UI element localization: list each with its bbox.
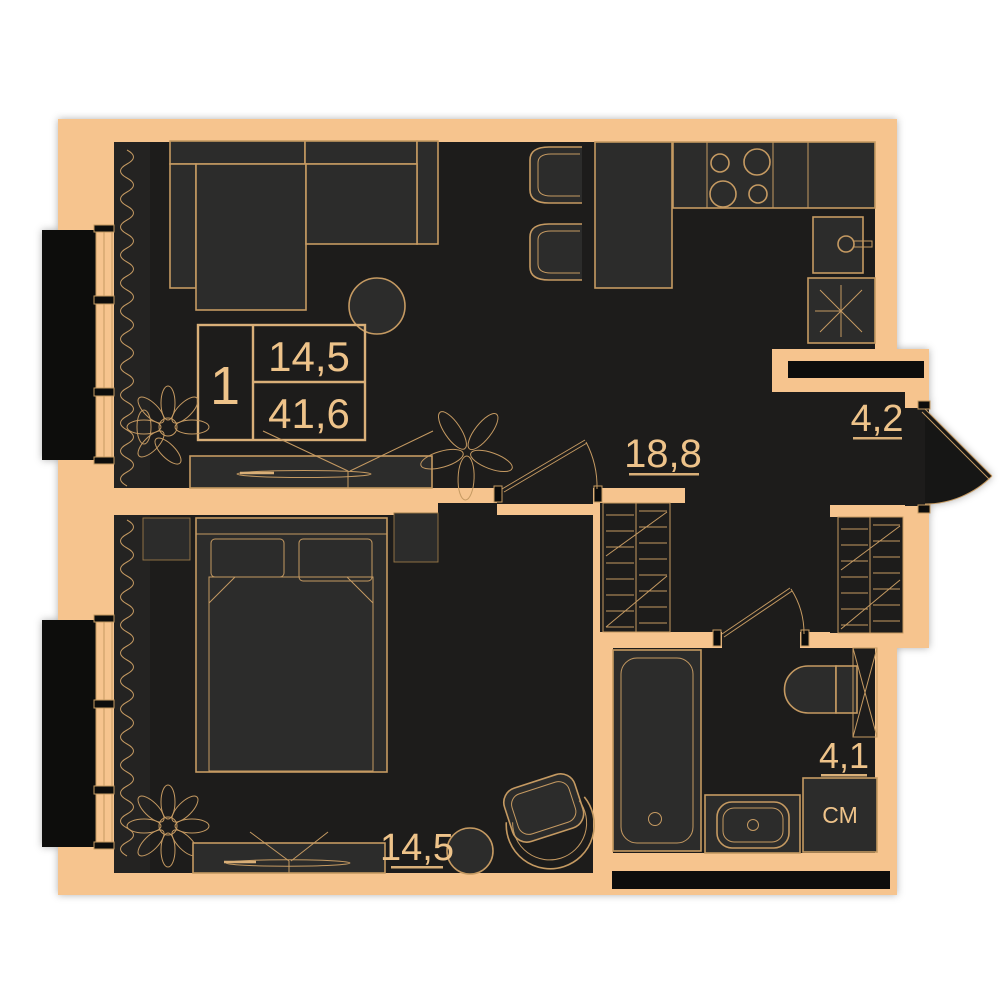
bedroom-doorway [497, 484, 593, 504]
floor-plan: 1 14,5 41,6 [0, 0, 1000, 1000]
living-area-value: 14,5 [268, 333, 350, 380]
room-count: 1 [210, 356, 240, 416]
total-area-value: 41,6 [268, 390, 350, 437]
window-exterior [42, 230, 96, 460]
floor-wardrobe-right [830, 517, 903, 633]
toilet [784, 666, 857, 713]
dining-table [595, 142, 672, 288]
nightstand-right [394, 513, 438, 562]
label-entrance-hall: 4,2 [851, 398, 904, 440]
washing-machine: СМ [803, 778, 877, 852]
kitchen-sink [813, 217, 872, 273]
wall-niche-slot [788, 361, 924, 378]
nightstand-left [143, 518, 190, 560]
label-bathroom: 4,1 [819, 735, 869, 776]
kitchen-chair-2 [530, 224, 582, 280]
curtain-zone-living [114, 142, 150, 488]
bottom-wall-slot [612, 871, 890, 889]
vent-shaft-kitchen [808, 278, 875, 343]
apartment-plan: 1 14,5 41,6 [42, 119, 992, 895]
window-exterior [42, 620, 96, 847]
kitchen-chair-1 [530, 147, 582, 203]
bathroom-sink [705, 795, 800, 853]
kitchen-counter [673, 142, 875, 208]
label-kitchen-living: 18,8 [624, 432, 702, 476]
bathtub [613, 650, 701, 851]
washing-machine-label: СМ [822, 802, 858, 828]
floor-bedroom-n [438, 503, 497, 516]
floor-wardrobe-left [600, 503, 685, 632]
bed [196, 518, 387, 772]
bathroom-doorway [722, 630, 800, 648]
label-bedroom: 14,5 [380, 827, 454, 869]
